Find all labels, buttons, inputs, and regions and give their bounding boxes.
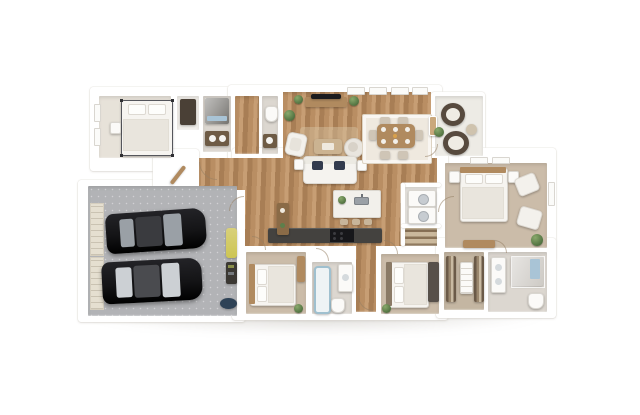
sink <box>495 278 502 285</box>
car-rear-glass <box>115 267 133 298</box>
hanging-clothes-left <box>446 256 456 302</box>
bar-stool <box>352 219 360 225</box>
bedpost <box>120 99 123 102</box>
pillow <box>485 174 503 184</box>
window-dining-1 <box>391 87 409 95</box>
table-tray <box>322 143 334 150</box>
window-living-1 <box>347 87 365 95</box>
blanket <box>404 264 427 305</box>
faucet <box>361 194 363 197</box>
dresser-bottom-left <box>297 256 305 282</box>
bathtub <box>314 266 331 314</box>
vanity-bottom-bath <box>338 264 353 292</box>
sink <box>495 264 502 271</box>
bed-top-left <box>121 100 173 156</box>
closet-shelf-tower <box>460 262 473 294</box>
swivel-seat <box>348 142 358 152</box>
place-setting <box>393 127 398 132</box>
car-windshield <box>161 263 181 298</box>
hall-console-table <box>277 203 289 235</box>
nightstand-master-left <box>449 171 460 183</box>
pillow <box>257 269 267 285</box>
washer-door <box>418 194 429 205</box>
sink <box>209 135 216 142</box>
shelf-item <box>228 265 234 268</box>
shelf-item <box>228 272 234 275</box>
sofa-pillow-navy <box>312 161 323 170</box>
pillow <box>394 267 404 284</box>
bedpost <box>120 154 123 157</box>
island-sink <box>354 197 369 205</box>
armchair-seat <box>289 137 302 152</box>
console-decor <box>280 208 285 213</box>
sink <box>266 137 273 144</box>
tv-flatscreen <box>311 94 341 99</box>
floorplan-render <box>0 0 640 415</box>
window-dining-2 <box>412 87 428 95</box>
plant-island <box>338 196 346 204</box>
bar-stool <box>364 219 372 225</box>
range-cooktop <box>330 229 354 242</box>
toilet-bottom-bath <box>331 298 345 313</box>
garage-shelf <box>226 262 237 284</box>
shower-master <box>511 256 543 286</box>
towel-blue <box>207 116 227 121</box>
car-1 <box>105 208 208 255</box>
bed-bottom-left <box>250 264 296 306</box>
window-master-right <box>548 182 555 206</box>
washer <box>408 190 436 207</box>
coffee-table <box>314 139 342 154</box>
pillow <box>128 104 146 115</box>
sink <box>342 274 349 281</box>
burner <box>333 232 336 235</box>
vanity-master-bath <box>491 257 506 293</box>
toilet-powder <box>265 106 278 122</box>
window-master-2 <box>492 157 510 164</box>
garage-mat <box>220 298 237 309</box>
water-heater <box>226 228 237 258</box>
candles <box>393 134 397 138</box>
burner <box>340 237 343 240</box>
sofa-pillow-navy <box>334 161 345 170</box>
pillow <box>465 174 483 184</box>
place-setting <box>393 139 398 144</box>
headboard <box>249 264 255 304</box>
window-bedroom-left-2 <box>94 128 101 146</box>
place-setting <box>405 139 410 144</box>
bedpost <box>171 154 174 157</box>
pillow <box>394 286 404 303</box>
plant-master <box>531 234 543 246</box>
headboard <box>460 167 506 173</box>
towel-blue <box>530 259 540 279</box>
car-roof <box>133 265 161 298</box>
blanket <box>123 119 169 151</box>
floor-foyer <box>235 96 259 154</box>
place-setting <box>381 127 386 132</box>
headboard <box>386 262 392 306</box>
car-windshield <box>163 213 183 246</box>
car-2 <box>101 257 203 304</box>
place-setting <box>381 139 386 144</box>
window-master-1 <box>470 157 488 164</box>
side-table-left <box>294 159 304 170</box>
sofa <box>303 156 357 184</box>
dryer <box>408 207 436 224</box>
dining-chair <box>369 130 377 140</box>
car-roof <box>135 216 163 248</box>
nightstand <box>110 122 121 134</box>
place-setting <box>405 127 410 132</box>
console-decor <box>280 223 285 228</box>
toilet-master-bath <box>528 293 544 309</box>
plant-bedroom-bottom-left <box>294 304 303 313</box>
burner <box>340 232 343 235</box>
blanket <box>268 266 294 303</box>
sink <box>219 135 226 142</box>
vanity-powder <box>263 134 277 148</box>
burner <box>333 237 336 240</box>
dryer-door <box>418 211 429 222</box>
plant-living-corner <box>284 110 295 121</box>
dresser-master <box>463 240 495 248</box>
pantry-shelves <box>405 228 437 246</box>
plant-bedroom-bottom-right <box>382 304 391 313</box>
swivel-chair <box>344 138 364 158</box>
pillow <box>257 286 267 302</box>
bed-bottom-right <box>387 262 429 308</box>
shower-top-bath <box>205 98 229 124</box>
hanging-clothes-right <box>474 256 484 302</box>
dining-chair <box>398 151 408 159</box>
dining-chair <box>415 130 423 140</box>
window-bedroom-left-1 <box>94 104 101 122</box>
closet-shelving-dark <box>180 99 196 125</box>
blanket <box>462 187 504 219</box>
bedpost <box>171 99 174 102</box>
window-living-2 <box>369 87 387 95</box>
kitchen-island <box>333 190 381 218</box>
dining-chair <box>380 151 390 159</box>
vanity-top-bath <box>205 131 229 146</box>
plant-patio <box>434 127 444 137</box>
dining-table <box>377 124 415 148</box>
patio-chair-1 <box>441 103 465 126</box>
patio-chair-2 <box>443 131 469 155</box>
bar-stool <box>340 219 348 225</box>
patio-side-table <box>466 124 477 135</box>
plant-living-left <box>294 95 303 104</box>
plant-living-right <box>349 96 359 106</box>
wardrobe-bottom-right <box>428 262 439 302</box>
pillow <box>148 104 166 115</box>
bed-master <box>460 168 508 222</box>
car-rear-glass <box>119 219 135 248</box>
garage-door-1 <box>90 203 104 256</box>
